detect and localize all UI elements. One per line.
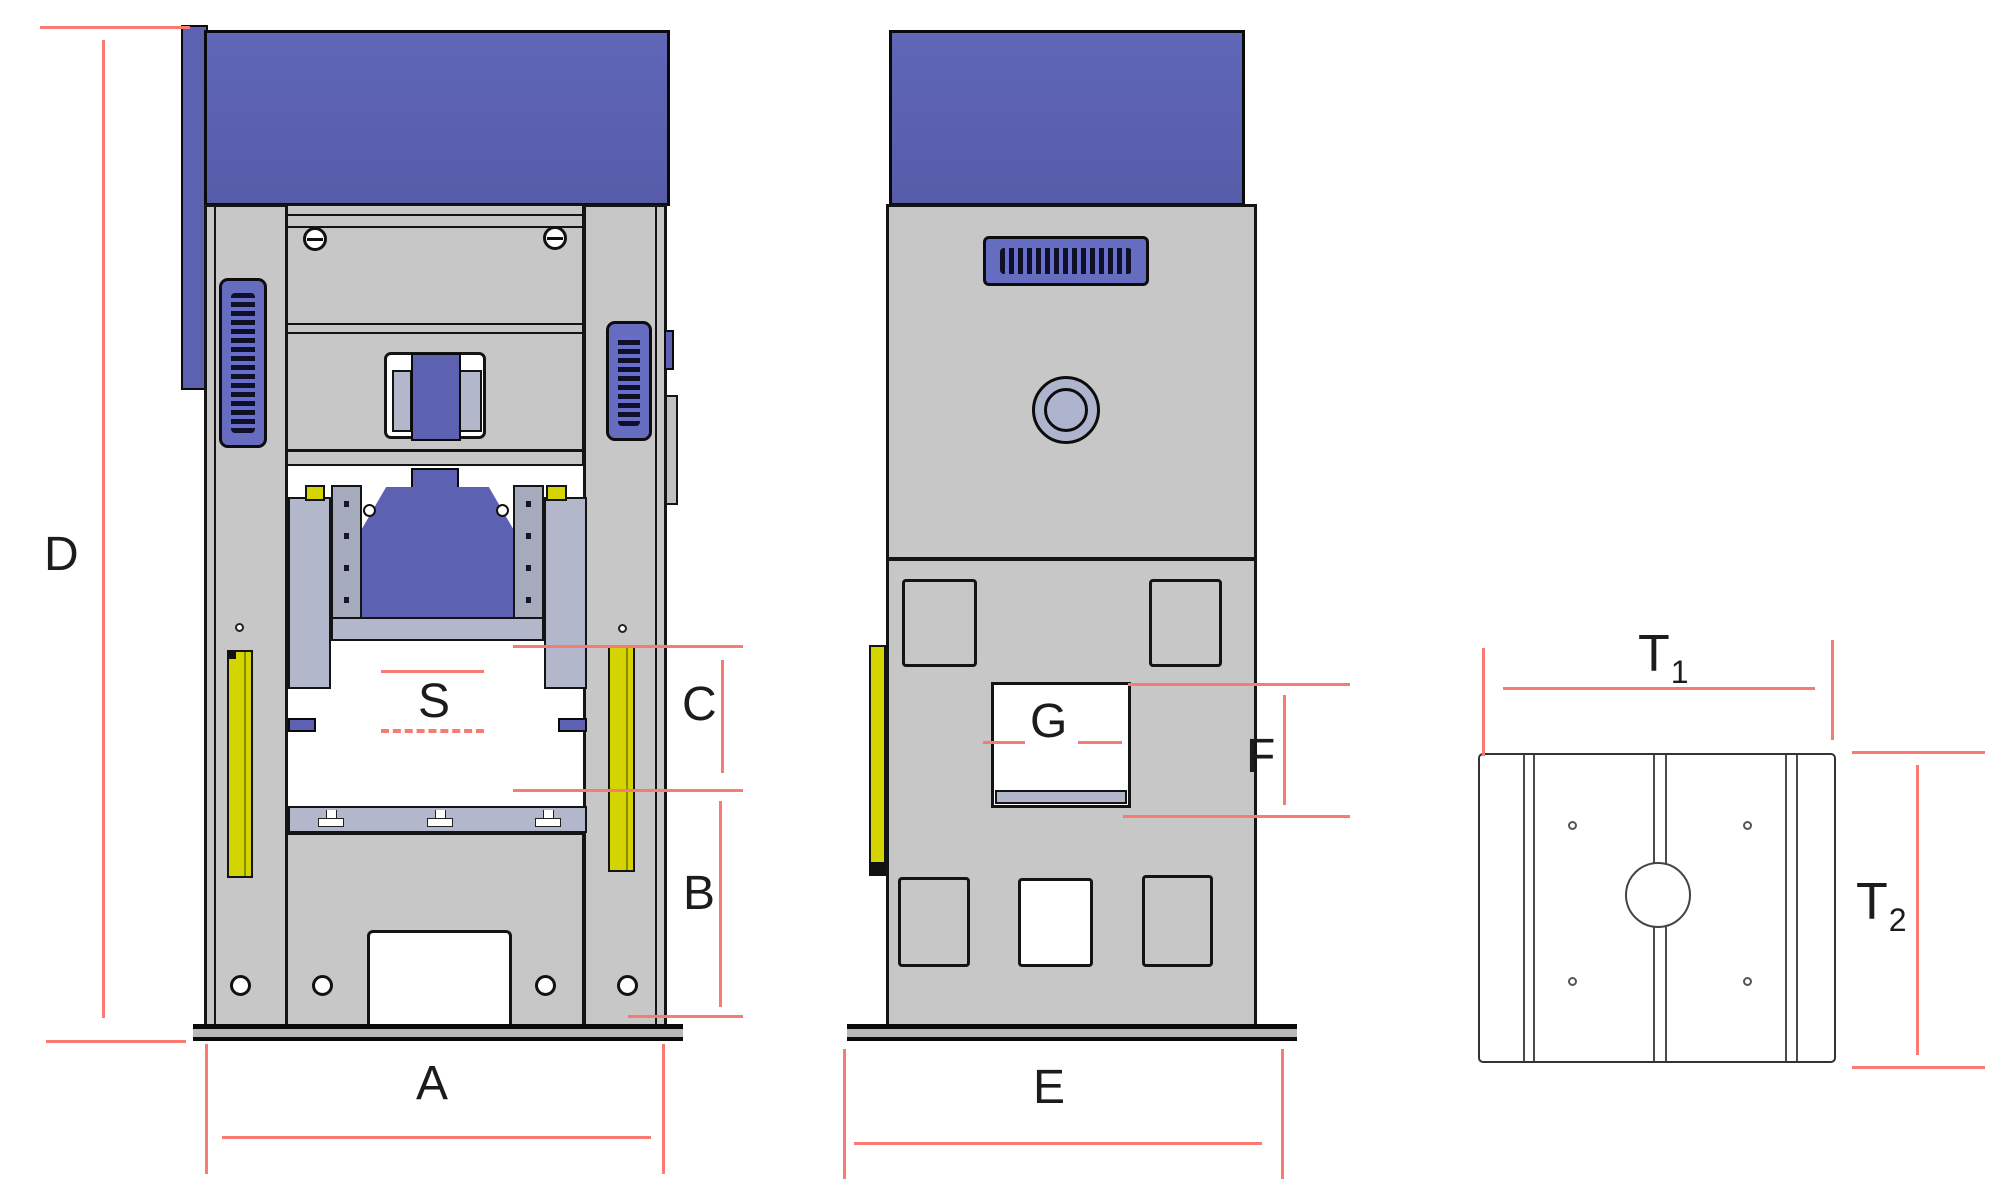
anchor-hole-2 (312, 975, 333, 996)
dim-label-c: C (682, 681, 717, 729)
brand-plate-left-column (219, 278, 267, 448)
dim-b-extension (719, 801, 722, 1007)
side-window-upper-left (902, 579, 977, 667)
bolster-plan (1478, 753, 1836, 1063)
anchor-hole-1 (230, 975, 251, 996)
dim-e-tick-left (843, 1049, 846, 1179)
dim-label-d: D (44, 531, 79, 579)
plan-groove-5 (1785, 755, 1787, 1061)
cylinder-housing (384, 352, 486, 439)
right-column-side-tab (665, 395, 678, 505)
press-dimensional-drawing: D (0, 0, 2000, 1198)
bolster-table (288, 806, 587, 833)
dim-f-top-line (1128, 683, 1350, 686)
plan-center-hole (1625, 862, 1691, 928)
slide-pin-right (496, 504, 509, 517)
slide-face-plate (362, 487, 513, 617)
brand-plate-text-illegible (1000, 248, 1132, 274)
screw-slot (307, 238, 323, 241)
dim-d-extension (102, 40, 105, 1018)
dim-f-extension (1283, 695, 1286, 805)
dim-label-a: A (416, 1060, 448, 1108)
bolt-dots (526, 501, 531, 625)
dim-label-t1-subscript: 1 (1671, 654, 1689, 690)
lower-frame-notch (367, 930, 512, 1034)
slide-guide-left (288, 497, 331, 689)
plan-bolt-hole-2 (1743, 821, 1752, 830)
side-window-lower-right (1142, 875, 1213, 967)
dim-g-dash-left (983, 741, 1025, 744)
dim-t1-line (1503, 687, 1815, 690)
brand-plate-text-illegible (231, 293, 255, 433)
stroke-lower-dashed-line (381, 729, 484, 733)
t-slot-foot (318, 818, 344, 827)
side-base-plate (847, 1024, 1297, 1041)
slide-block-yellow-left (305, 485, 325, 501)
crosshead-screw-left (303, 227, 327, 251)
right-column-inner-line (655, 207, 657, 1031)
dim-g-dash-right (1078, 741, 1122, 744)
light-curtain-front-left (227, 650, 253, 878)
plan-groove-1 (1523, 755, 1525, 1061)
dim-label-b: B (683, 870, 715, 918)
brand-plate-side (983, 236, 1149, 286)
guide-tab-right (558, 718, 587, 732)
side-window-lower-left (898, 877, 970, 967)
dim-t2-extension (1916, 765, 1919, 1055)
dim-label-t1-base: T (1638, 625, 1670, 683)
plan-bolt-hole-3 (1568, 977, 1577, 986)
dim-t1-tick-right (1831, 640, 1834, 740)
dim-e-tick-right (1281, 1049, 1284, 1179)
dim-line-bottom-left (46, 1040, 186, 1043)
dim-b-bottom-line (628, 1015, 743, 1018)
side-crown-block (889, 30, 1245, 206)
dim-label-t2-base: T (1856, 873, 1888, 931)
anchor-hole-4 (617, 975, 638, 996)
dim-t2-top-line (1852, 751, 1985, 754)
crosshead-line-2 (288, 226, 582, 228)
crosshead-screw-right (543, 226, 567, 250)
screw-slot (547, 237, 563, 240)
light-curtain-side-cap (869, 862, 886, 876)
slide-block-yellow-right (546, 485, 567, 501)
light-curtain-cap (227, 650, 236, 659)
dim-f-bottom-line (1123, 815, 1350, 818)
t-slot-1 (318, 810, 344, 827)
dim-a-tick-left (205, 1044, 208, 1174)
slide-guide-right (544, 497, 587, 689)
slide-pin-left (363, 504, 376, 517)
column-pin-hole-left (235, 623, 244, 632)
side-window-lower-center (1018, 878, 1093, 967)
guide-tab-left (288, 718, 316, 732)
capacity-plate-right-column (606, 321, 652, 441)
cylinder-center (411, 353, 461, 441)
side-window-upper-right (1149, 579, 1222, 667)
capacity-plate-text-illegible (618, 336, 640, 426)
dim-label-g: G (1030, 698, 1067, 746)
beam-top-line (288, 449, 582, 452)
side-opening-sill (995, 790, 1127, 804)
dim-c-bottom-line (513, 789, 743, 792)
slide-bottom-bar (331, 617, 544, 641)
front-base-plate (193, 1024, 683, 1041)
dim-line-top (40, 26, 190, 29)
left-column-inner-line (214, 207, 216, 1031)
cylinder-side-left (392, 370, 412, 432)
dim-t2-bottom-line (1852, 1066, 1985, 1069)
plan-bolt-hole-1 (1568, 821, 1577, 830)
dim-label-t2-subscript: 2 (1889, 902, 1907, 938)
t-slot-2 (427, 810, 453, 827)
t-slot-foot (427, 818, 453, 827)
plan-groove-6 (1796, 755, 1798, 1061)
side-port-circle (1032, 376, 1100, 444)
bolt-dots (344, 501, 349, 625)
dim-a-line (222, 1136, 651, 1139)
plan-groove-2 (1533, 755, 1535, 1061)
t-slot-3 (535, 810, 561, 827)
anchor-hole-3 (535, 975, 556, 996)
crown-block (204, 30, 670, 206)
dim-t1-tick-left (1482, 648, 1485, 756)
side-port-inner-ring (1044, 388, 1088, 432)
light-curtain-seam (626, 647, 628, 870)
t-slot-foot (535, 818, 561, 827)
dim-label-e: E (1033, 1064, 1065, 1112)
plan-bolt-hole-4 (1743, 977, 1752, 986)
light-curtain-seam (244, 652, 246, 876)
dim-label-t2: T2 (1856, 876, 1906, 928)
light-curtain-front-right (608, 645, 635, 872)
dim-c-top-line (513, 645, 743, 648)
crosshead-line-4 (288, 332, 582, 334)
dim-label-s: S (418, 678, 450, 726)
cylinder-side-right (458, 370, 482, 432)
dim-label-f: F (1246, 733, 1275, 781)
dim-a-tick-right (662, 1044, 665, 1174)
crosshead-line-1 (288, 214, 582, 216)
dim-e-line (854, 1142, 1262, 1145)
stroke-upper-line (381, 670, 484, 673)
dim-label-t1: T1 (1638, 628, 1688, 680)
column-pin-hole-right (618, 624, 627, 633)
dim-c-extension (721, 660, 724, 773)
right-column-side-clip (664, 330, 674, 370)
crosshead-line-3 (288, 323, 582, 325)
light-curtain-side (869, 645, 886, 875)
